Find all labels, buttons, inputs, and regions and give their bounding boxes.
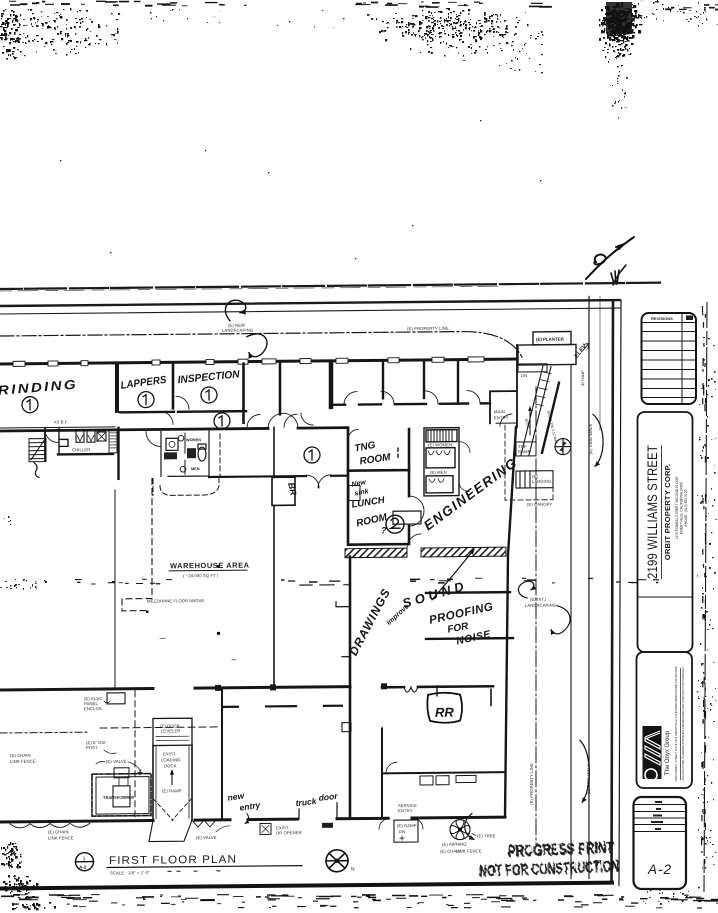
- svg-text:LEVELER: LEVELER: [161, 728, 181, 733]
- svg-text:(E) PROPERTY LINE: (E) PROPERTY LINE: [407, 326, 449, 331]
- svg-text:(E) CHAIN: (E) CHAIN: [10, 753, 31, 758]
- svg-text:LANDSCAPING: LANDSCAPING: [525, 603, 556, 608]
- svg-text:(E) SIDE WALK: (E) SIDE WALK: [588, 424, 593, 455]
- svg-text:(EXIST.): (EXIST.): [530, 597, 547, 602]
- svg-text:X3 B.F.: X3 B.F.: [54, 419, 68, 424]
- svg-text:(E) AWNING: (E) AWNING: [442, 842, 467, 847]
- svg-text:TRANSFORMER: TRANSFORMER: [103, 795, 134, 800]
- svg-text:(E) RAMP: (E) RAMP: [162, 788, 182, 793]
- svg-text:(E) MEN: (E) MEN: [430, 470, 447, 475]
- svg-text:(E) VALVE: (E) VALVE: [196, 835, 217, 840]
- svg-text:LINK FENCE: LINK FENCE: [456, 848, 482, 853]
- svg-text:DOCK: DOCK: [164, 763, 177, 768]
- svg-text:DN: DN: [521, 373, 527, 378]
- svg-text:(E) WOMEN: (E) WOMEN: [428, 442, 452, 447]
- svg-text:(E) CHAIN: (E) CHAIN: [48, 829, 69, 834]
- svg-text:ORBIT PROPERTY CORP.: ORBIT PROPERTY CORP.: [663, 464, 672, 561]
- svg-text:RR: RR: [435, 705, 454, 720]
- svg-text:ENTRY: ENTRY: [494, 415, 509, 420]
- svg-text:The Onyx Group: The Onyx Group: [665, 730, 671, 775]
- svg-text:2000 POWELL STREET SUITE 1575: 2000 POWELL STREET SUITE 1575 EMERYVILLE…: [674, 666, 678, 781]
- svg-text:DR OPENER: DR OPENER: [276, 830, 302, 835]
- svg-text:ENTRY: ENTRY: [398, 808, 413, 813]
- svg-text:MEN: MEN: [191, 467, 200, 471]
- svg-text:RAMP: RAMP: [518, 449, 531, 454]
- svg-text:(E) PROPERTY LINE: (E) PROPERTY LINE: [529, 763, 534, 805]
- svg-text:SCALE : 1/8" = 1'-0": SCALE : 1/8" = 1'-0": [110, 870, 150, 875]
- svg-text:1475 POWELL STREET SECOND FLOO: 1475 POWELL STREET SECOND FLOOR: [675, 476, 679, 540]
- svg-text:(E) RAMP: (E) RAMP: [397, 823, 417, 828]
- svg-text:MEZZANINE FLOOR ABOVE: MEZZANINE FLOOR ABOVE: [147, 598, 204, 604]
- svg-text:WOMEN: WOMEN: [186, 438, 201, 442]
- svg-text:1: 1: [83, 856, 86, 862]
- svg-text:FIRST FLOOR PLAN: FIRST FLOOR PLAN: [109, 854, 237, 867]
- svg-text:LANDING: LANDING: [532, 479, 551, 484]
- svg-text:( ~20,000 SQ FT ): ( ~20,000 SQ FT ): [183, 573, 219, 578]
- svg-text:LINK FENCE: LINK FENCE: [48, 835, 74, 840]
- svg-text:ENCLOS.: ENCLOS.: [84, 706, 103, 711]
- svg-text:N: N: [351, 867, 355, 873]
- svg-text:LANDSCAPING: LANDSCAPING: [222, 328, 253, 333]
- svg-text:POST: POST: [86, 745, 98, 750]
- svg-text:LINK FENCE: LINK FENCE: [10, 759, 36, 764]
- svg-text:(E) PLANTER: (E) PLANTER: [536, 337, 565, 342]
- svg-text:(E) CANOPY: (E) CANOPY: [527, 502, 553, 507]
- svg-text:CHILLER: CHILLER: [72, 447, 90, 452]
- svg-text:EMERYVILLE, CALIFORNIA 94608: EMERYVILLE, CALIFORNIA 94608: [680, 482, 684, 534]
- svg-text:LOADING: LOADING: [161, 757, 181, 762]
- svg-text:A-2: A-2: [647, 862, 672, 877]
- svg-text:2199 WILLIAMS STREET: 2199 WILLIAMS STREET: [645, 445, 661, 579]
- svg-text:(E) VALVE: (E) VALVE: [106, 759, 127, 764]
- svg-text:ARCHITECTURE PLANNING INTERIOR: ARCHITECTURE PLANNING INTERIORS ENGINEER…: [681, 667, 685, 781]
- svg-text:WAREHOUSE AREA: WAREHOUSE AREA: [170, 561, 250, 571]
- svg-text:REVISIONS: REVISIONS: [651, 316, 673, 321]
- svg-text:PHONE : (510) 652-0120: PHONE : (510) 652-0120: [684, 489, 688, 526]
- svg-text:A-2: A-2: [79, 865, 87, 870]
- svg-text:(E) TREE: (E) TREE: [477, 833, 496, 838]
- svg-text:EXIST.: EXIST.: [163, 751, 176, 756]
- svg-text:DN: DN: [399, 829, 405, 834]
- svg-text:(E) RAMP: (E) RAMP: [581, 370, 585, 387]
- svg-text:MAIN: MAIN: [494, 409, 505, 414]
